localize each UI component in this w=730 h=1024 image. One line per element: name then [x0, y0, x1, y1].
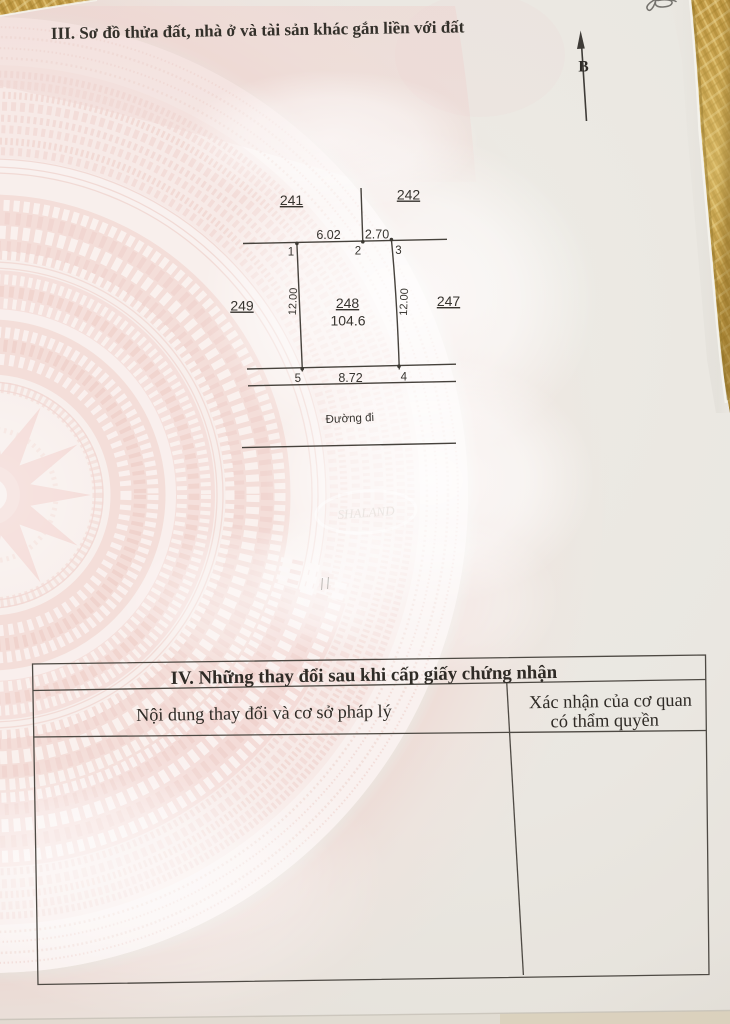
svg-text:249: 249 [230, 298, 254, 314]
svg-text:6.02: 6.02 [316, 228, 340, 242]
svg-text:12.00: 12.00 [287, 288, 300, 316]
svg-text:Đường đi: Đường đi [325, 412, 374, 426]
svg-text:Xác nhận của cơ quan: Xác nhận của cơ quan [529, 690, 692, 713]
svg-text:2: 2 [355, 246, 361, 258]
svg-text:104.6: 104.6 [330, 313, 365, 329]
svg-text:12.00: 12.00 [398, 288, 411, 316]
svg-text:B: B [578, 59, 588, 76]
svg-text:1: 1 [288, 247, 294, 259]
svg-text:8.72: 8.72 [338, 371, 362, 385]
svg-text:4: 4 [401, 372, 408, 384]
svg-text:có thẩm quyền: có thẩm quyền [550, 710, 659, 732]
svg-text:248: 248 [336, 295, 360, 311]
svg-text:2.70: 2.70 [365, 227, 389, 241]
svg-text:Nội dung thay đổi và cơ sở phá: Nội dung thay đổi và cơ sở pháp lý [136, 701, 393, 725]
svg-text:241: 241 [280, 192, 304, 208]
svg-text:3: 3 [395, 245, 401, 257]
svg-text:242: 242 [397, 187, 421, 203]
svg-text:5: 5 [295, 373, 301, 385]
svg-text:247: 247 [437, 293, 461, 309]
